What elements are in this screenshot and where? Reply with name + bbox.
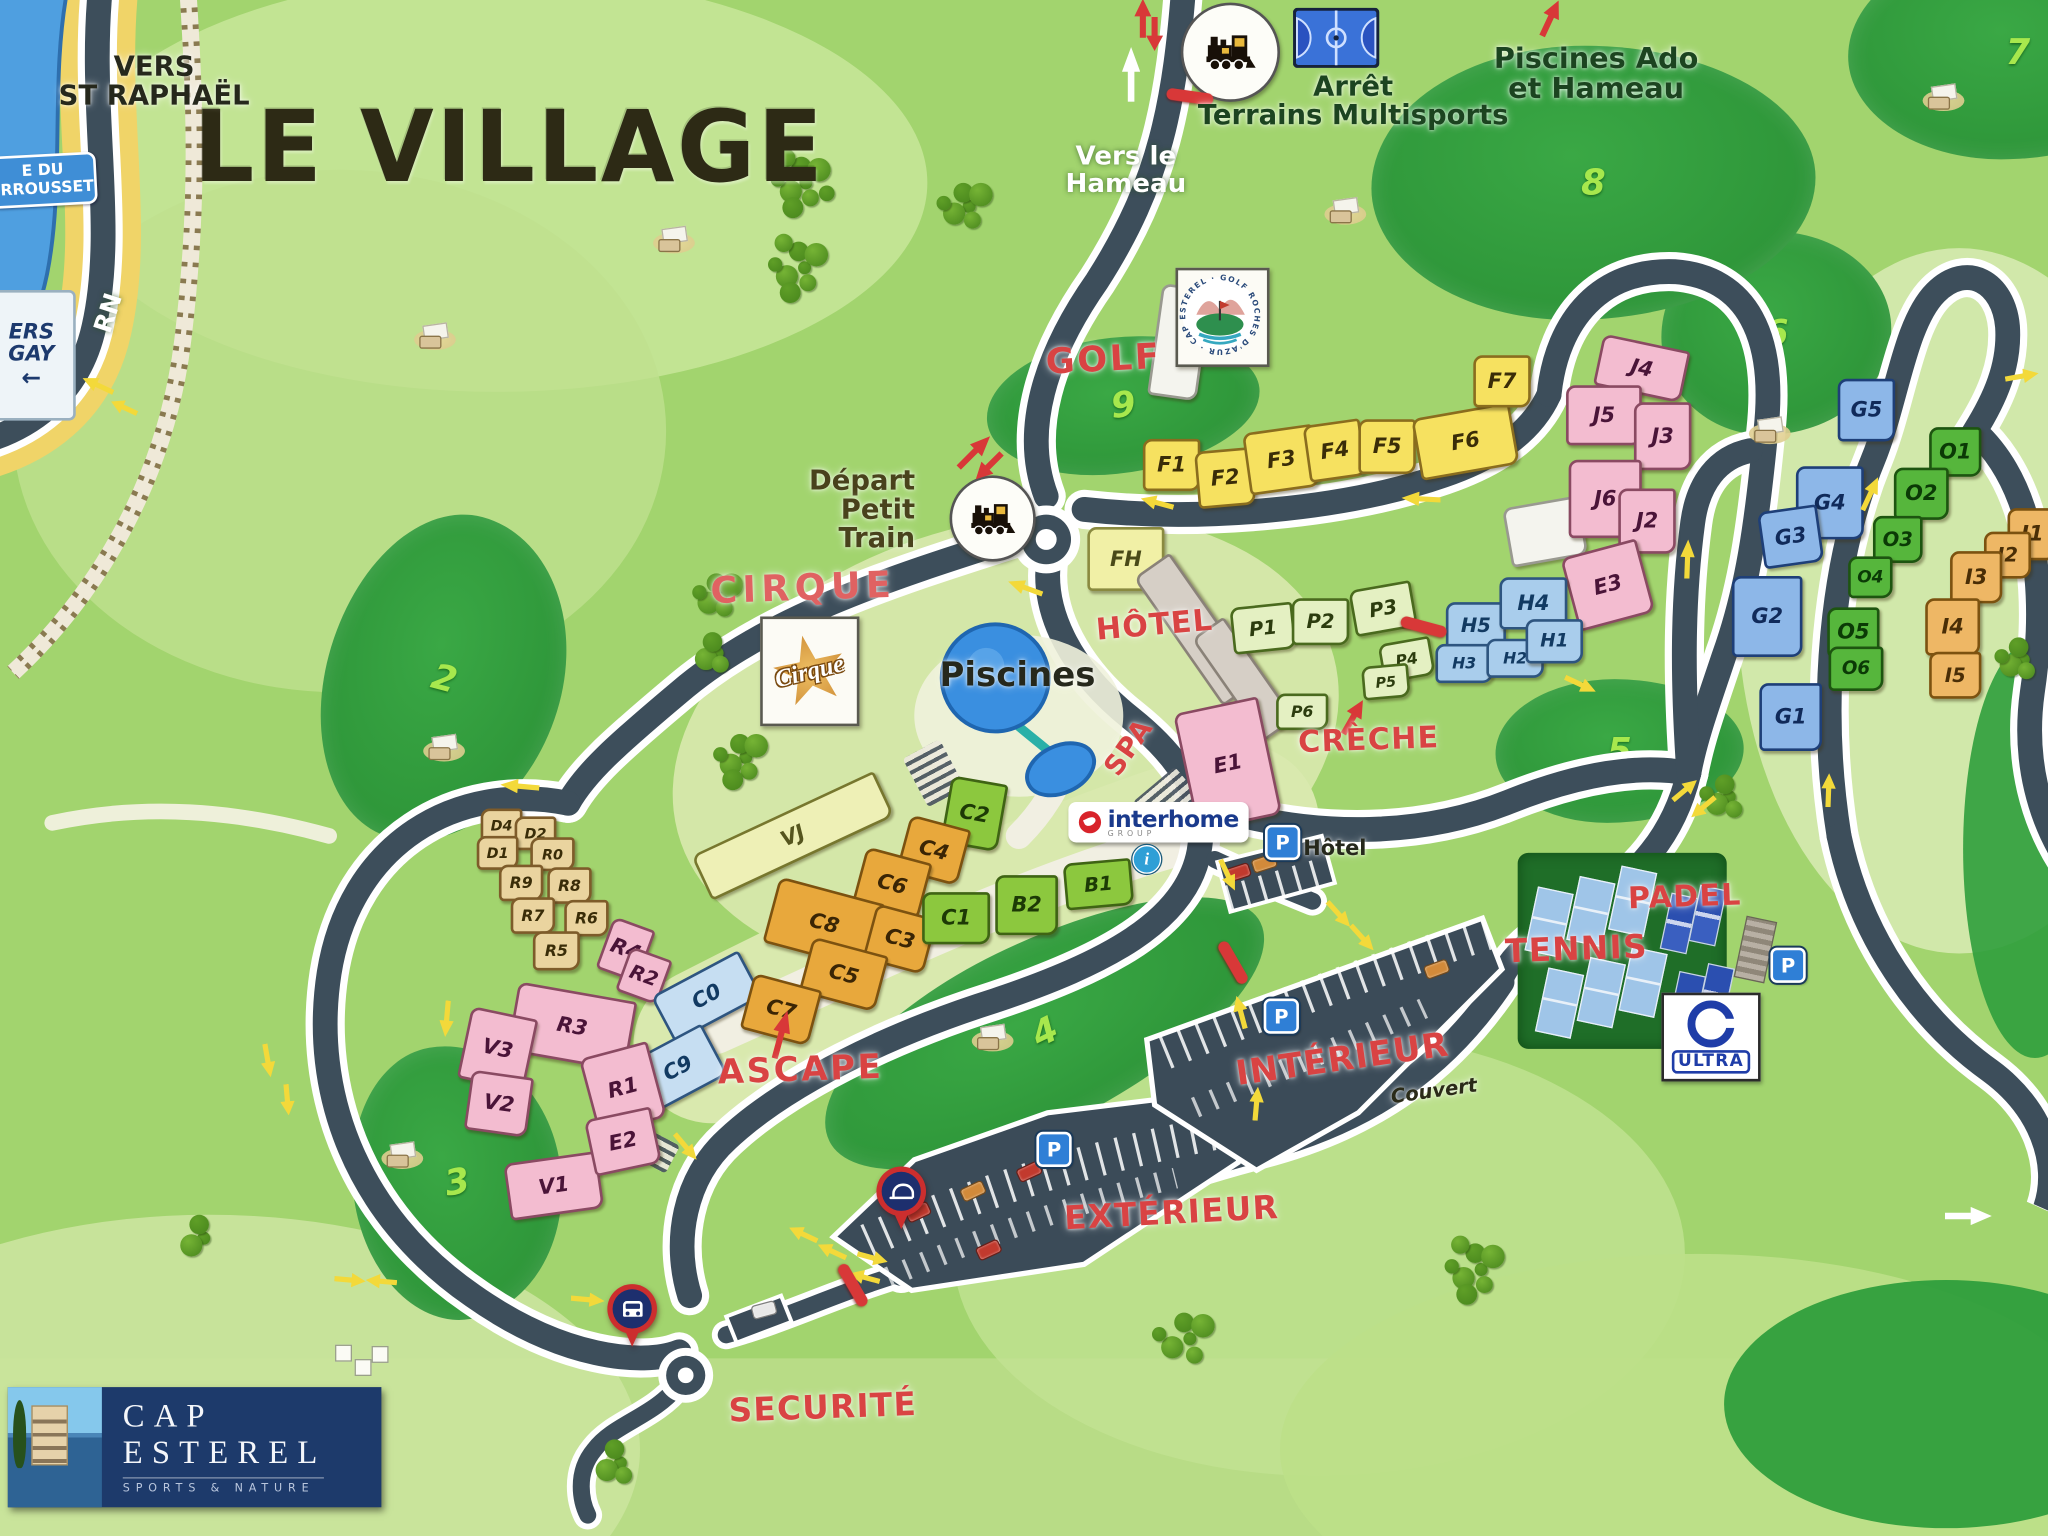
tree-icon — [1715, 774, 1735, 794]
building: V2 — [464, 1070, 534, 1138]
tree-icon — [1445, 1259, 1459, 1273]
map-label: CRÈCHE — [1298, 722, 1440, 758]
petit-train-depart-icon — [950, 475, 1036, 561]
building: F7 — [1473, 355, 1530, 407]
building: J5 — [1566, 385, 1642, 445]
parking-icon: P — [1036, 1132, 1071, 1167]
tree-icon — [969, 183, 993, 207]
building: G2 — [1732, 576, 1803, 657]
building: O4 — [1848, 556, 1892, 598]
interhome-logo: interhome GROUP — [1068, 802, 1249, 842]
map-label: Piscines — [939, 659, 1095, 695]
building: R7 — [511, 897, 555, 934]
map-title: LE VILLAGE — [193, 88, 825, 204]
tennis-court — [1577, 957, 1626, 1028]
building: G1 — [1759, 683, 1822, 751]
white-square — [355, 1359, 372, 1376]
cap-icon — [889, 1184, 913, 1200]
building: O6 — [1829, 647, 1884, 691]
security-cap-pin — [876, 1167, 928, 1235]
golf-cart-shed-icon — [657, 227, 691, 253]
bus-icon — [622, 1301, 642, 1317]
building: P1 — [1229, 602, 1296, 655]
cirque-badge: Cirque — [760, 616, 859, 726]
map-label: Arrêt Terrains Multisports — [1198, 72, 1509, 130]
building: H1 — [1526, 619, 1583, 663]
building: I3 — [1950, 551, 2002, 603]
golf-cart-shed-icon — [1927, 85, 1961, 111]
white-square — [335, 1345, 352, 1362]
building: G3 — [1757, 504, 1824, 569]
interhome-bird-icon — [1079, 811, 1101, 833]
tree-icon — [615, 1467, 632, 1484]
white-square — [372, 1346, 389, 1363]
parking-icon: P — [1265, 825, 1300, 860]
tree-icon — [741, 762, 758, 779]
multisport-court-icon — [1293, 8, 1379, 68]
golf-cart-shed-icon — [418, 324, 452, 350]
tree-icon — [1191, 1314, 1215, 1338]
map-label: Départ Petit Train — [809, 466, 915, 552]
bus-stop-pin — [607, 1284, 659, 1352]
tree-icon — [1174, 1312, 1194, 1332]
building: P2 — [1292, 598, 1349, 645]
tree-icon — [936, 196, 950, 210]
golf-cart-shed-icon — [976, 1025, 1010, 1051]
building: B2 — [995, 875, 1058, 935]
map-label: SECURITÉ — [728, 1388, 918, 1429]
tree-icon — [595, 1459, 617, 1481]
cap-esterel-photo — [8, 1387, 102, 1507]
map-label: ASCAPE — [717, 1050, 884, 1091]
golf-cart-shed-icon — [1328, 199, 1362, 225]
info-icon: i — [1132, 845, 1161, 874]
roundabout-securite — [658, 1348, 713, 1403]
building: G5 — [1838, 379, 1895, 442]
parking-small-lot — [726, 1296, 791, 1343]
cap-tagline: SPORTS & NATURE — [123, 1482, 382, 1495]
tree-icon — [1456, 1284, 1477, 1305]
building: C1 — [922, 892, 990, 944]
cap-line2: ESTEREL — [123, 1435, 382, 1472]
tree-icon — [180, 1234, 202, 1256]
golf-cart-shed-icon — [1753, 418, 1787, 444]
building: R9 — [499, 865, 543, 902]
building: F1 — [1143, 439, 1200, 491]
cap-line1: CAP — [123, 1399, 382, 1436]
tree-icon — [703, 632, 723, 652]
ultra-logo: ULTRA — [1661, 993, 1760, 1082]
building: I5 — [1929, 652, 1981, 699]
agay-sign-text: ERS GAY — [8, 318, 54, 366]
tree-icon — [1186, 1346, 1203, 1363]
tree-icon — [780, 282, 801, 303]
map-label: PADEL — [1628, 880, 1743, 915]
tree-icon — [712, 655, 729, 672]
ultra-ring-icon — [1688, 1000, 1735, 1047]
golf-cart-shed-icon — [427, 735, 461, 761]
resort-map: 23456789 — [0, 0, 2048, 1536]
map-label: Vers le Hameau — [1066, 142, 1187, 197]
building: P5 — [1361, 663, 1411, 701]
ultra-word: ULTRA — [1671, 1050, 1750, 1075]
parking-icon: P — [1770, 948, 1805, 983]
map-label: VERS ST RAPHAËL — [59, 52, 250, 110]
map-label: GOLF — [1045, 339, 1163, 382]
map-label: TENNIS — [1505, 930, 1649, 969]
building: R5 — [533, 931, 580, 970]
agay-sign: ERS GAY ← — [0, 290, 76, 421]
building: O2 — [1894, 468, 1949, 520]
map-label: Hôtel — [1303, 838, 1366, 860]
map-photo: 23456789 — [0, 0, 2048, 1536]
tree-icon — [692, 585, 706, 599]
map-label: Piscines Ado et Hameau — [1494, 44, 1699, 104]
building: F5 — [1358, 419, 1415, 474]
parking-icon: P — [1264, 999, 1299, 1034]
golf-club-badge: GOLF ROCHES D'AZUR · CAP ESTEREL · — [1176, 268, 1270, 367]
agay-left-arrow: ← — [0, 365, 65, 391]
tree-icon — [1725, 800, 1742, 817]
building: B1 — [1063, 858, 1135, 911]
roads-layer — [0, 0, 2048, 1536]
plage-sign: E DU RROUSSET — [0, 151, 98, 208]
tree-icon — [768, 257, 782, 271]
tennis-court — [1535, 967, 1584, 1038]
cap-esterel-logo: CAP ESTEREL SPORTS & NATURE — [8, 1387, 382, 1507]
golf-cart-shed-icon — [385, 1143, 419, 1169]
map-label: CIRQUE — [710, 565, 897, 610]
building: H3 — [1435, 644, 1492, 683]
building: J3 — [1634, 402, 1691, 470]
building: I4 — [1925, 598, 1980, 655]
